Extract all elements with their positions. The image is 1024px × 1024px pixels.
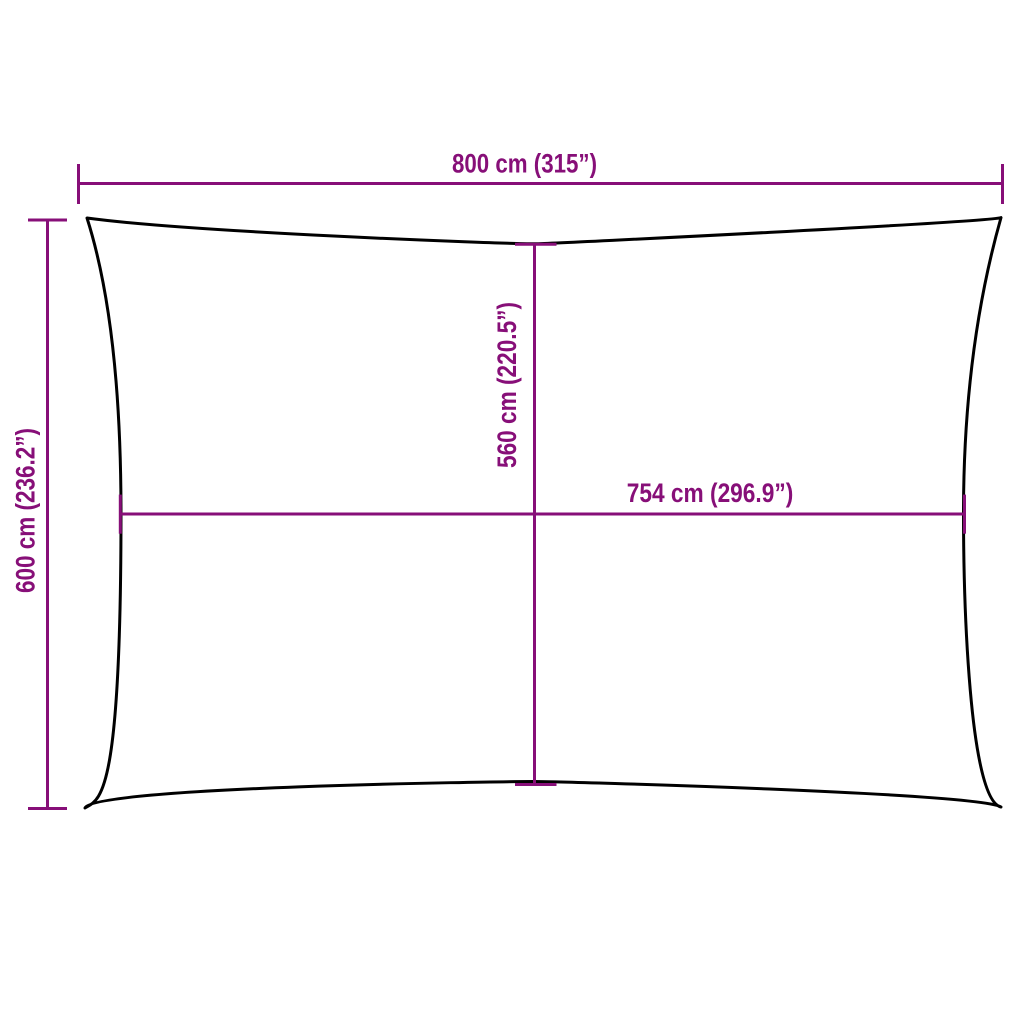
svg-text:800 cm (315”): 800 cm (315”) [452,149,597,179]
svg-text:754 cm (296.9”): 754 cm (296.9”) [627,478,794,508]
svg-text:600 cm (236.2”): 600 cm (236.2”) [11,428,41,593]
svg-text:560 cm (220.5”): 560 cm (220.5”) [492,302,522,468]
